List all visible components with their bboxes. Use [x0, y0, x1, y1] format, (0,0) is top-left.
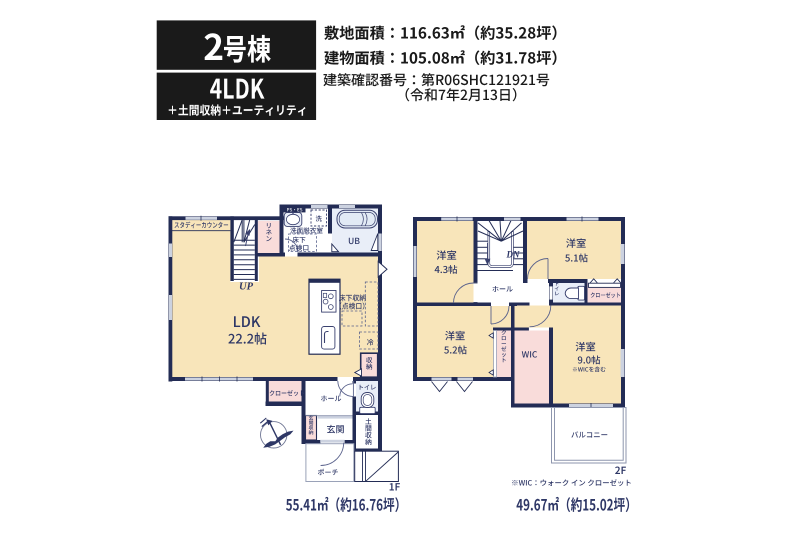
svg-text:DN: DN: [506, 250, 520, 260]
svg-text:UP: UP: [239, 282, 254, 293]
